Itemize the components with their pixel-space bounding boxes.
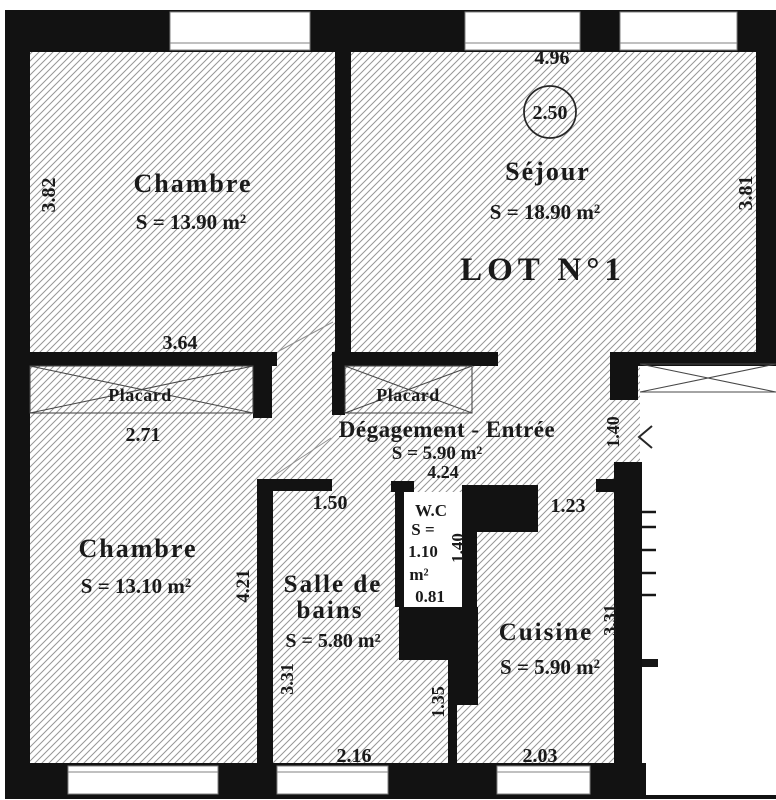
window-cuisine [497,766,590,794]
window-chambre-bottom [68,766,218,794]
dim-bains-height: 3.31 [277,663,297,695]
outside-landing-area [640,366,776,800]
wall-entry-above-door [610,360,638,400]
bains-name-line1: Salle de [284,571,383,598]
dim-entry-door: 1.40 [603,416,623,448]
wall-chambre-sejour [335,44,351,366]
dim-bains-bottom: 2.16 [337,745,372,767]
cuisine-name: Cuisine [499,619,594,646]
floor-plan-page: Chambre S = 13.90 m² 3.64 3.82 4.96 2.50… [0,0,776,800]
wc-name: W.C [415,501,447,520]
dim-degagement-width: 4.24 [427,462,459,482]
dim-bains-top: 1.50 [313,492,348,514]
chambre-top-area: S = 13.90 m² [136,210,246,234]
bains-name-line2: bains [297,597,364,624]
wc-area-value: 1.10 [408,542,438,561]
wall-placard-left-stub [253,352,272,418]
window-sejour-1 [465,12,580,50]
cuisine-area: S = 5.90 m² [500,655,600,679]
dim-chambre-top-width: 3.64 [163,332,198,354]
dim-cuisine-height: 3.31 [600,604,620,636]
chambre-top-name: Chambre [134,169,253,198]
wall-bains-top [257,479,332,491]
wc-area-unit: m² [409,565,428,584]
wall-mid-left [22,352,277,366]
duct-wc-right [462,485,538,532]
wall-placard-mid-stub [332,366,345,415]
dim-cuisine-left: 1.35 [428,686,448,718]
wall-wc-left [395,481,404,607]
wall-left [5,10,30,798]
dim-chambre-bottom-height: 4.21 [233,569,254,602]
window-bains [277,766,388,794]
window-sejour-2 [620,12,737,50]
duct-lower-block [399,607,478,660]
sejour-ceiling-height: 2.50 [533,102,568,124]
dim-sejour-width: 4.96 [535,47,570,69]
dim-chambre-top-height: 3.82 [38,178,60,213]
floor-plan-drawing: Chambre S = 13.90 m² 3.64 3.82 4.96 2.50… [0,0,776,800]
closet-left-label: Placard [108,385,172,405]
sejour-area: S = 18.90 m² [490,200,600,224]
wall-chambre-bains [257,479,273,779]
wall-right-upper [756,10,776,366]
bains-area: S = 5.80 m² [285,630,380,652]
building-base-line [5,795,776,799]
window-chambre-top [170,12,310,50]
wc-area-prefix: S = [411,520,434,539]
dim-cuisine-top: 1.23 [551,495,586,517]
sejour-name: Séjour [505,157,591,186]
degagement-area: S = 5.90 m² [392,443,483,464]
chambre-bottom-area: S = 13.10 m² [81,574,191,598]
dim-sejour-height: 3.81 [735,176,757,211]
wall-bains-cuisine [448,705,457,767]
degagement-name: Dégagement - Entrée [339,417,555,442]
dim-wc-depth: 1.40 [448,533,467,563]
chambre-bottom-name: Chambre [79,534,198,563]
dim-cuisine-bottom: 2.03 [523,745,558,767]
wall-mid-center [332,352,498,366]
dim-closet-left-width: 2.71 [126,424,161,446]
duct-lower-column [448,660,478,705]
closet-middle-label: Placard [376,385,440,405]
dim-wc-width: 0.81 [415,587,445,606]
lot-number-label: LOT N°1 [460,252,626,288]
